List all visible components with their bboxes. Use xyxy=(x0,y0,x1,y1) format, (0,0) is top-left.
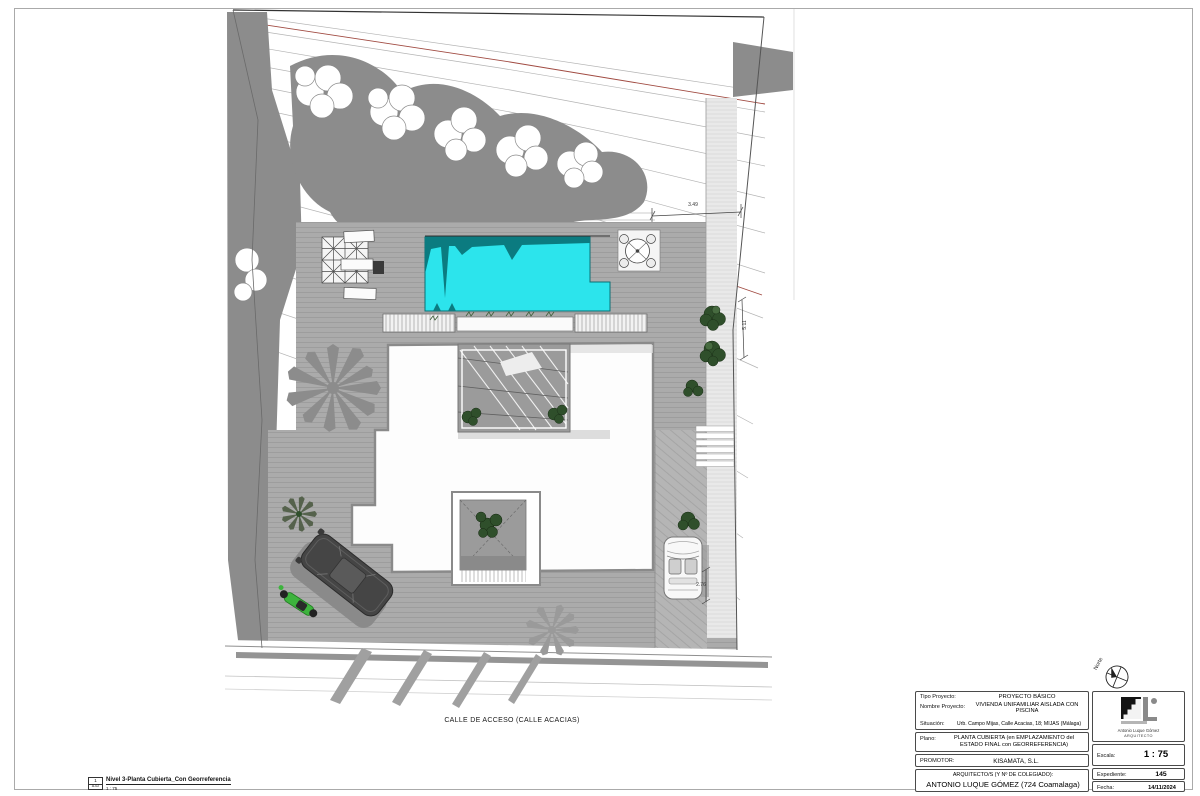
slope-strip xyxy=(706,98,737,638)
escala-value: 1 : 75 xyxy=(1131,749,1181,760)
site-boundary-right xyxy=(733,17,764,650)
architect-box: ARQUITECTO/S (Y Nº DE COLEGIADO): ANTONI… xyxy=(915,769,1089,792)
expediente-box: Expediente: 145 xyxy=(1092,768,1185,780)
nombre-proyecto-value: VIVIENDA UNIFAMILIAR AISLADA CON PISCINA xyxy=(968,702,1086,715)
bbq-icon xyxy=(373,261,384,274)
tipo-proyecto-value: PROYECTO BÁSICO xyxy=(968,694,1086,700)
fecha-label: Fecha: xyxy=(1097,785,1114,791)
north-arrow-icon xyxy=(1103,663,1132,692)
street-label: CALLE DE ACCESO (CALLE ACACIAS) xyxy=(422,717,602,724)
situacion-label: Situación: xyxy=(920,721,945,727)
plano-box: Plano: PLANTA CUBIERTA (en EMPLAZAMIENTO… xyxy=(915,732,1089,752)
promotor-box: PROMOTOR: KISAMATA, S.L. xyxy=(915,754,1089,767)
view-reference-box: 1 A-02 xyxy=(88,777,103,790)
lower-courtyard xyxy=(452,492,540,585)
dimension-label-right: 5.11 xyxy=(742,308,748,342)
logo-architect-title: ARQUITECTO xyxy=(1093,734,1184,738)
nombre-proyecto-label: Nombre Proyecto: xyxy=(920,704,965,710)
expediente-value: 145 xyxy=(1141,771,1181,778)
escala-label: Escala: xyxy=(1097,753,1115,759)
architect-value: ANTONIO LUQUE GÓMEZ (724 Coamalaga) xyxy=(916,780,1090,789)
view-legend: 1 A-02 Nivel 3-Planta Cubierta_Con Georr… xyxy=(88,776,288,794)
logo-architect-name: Antonio Luque Gómez xyxy=(1093,728,1184,733)
architect-logo-box: Antonio Luque Gómez ARQUITECTO xyxy=(1092,691,1185,742)
dimension-label-top: 3.49 xyxy=(676,202,710,208)
plano-label: Plano: xyxy=(920,736,936,742)
dimension-label-driveway: 2.76 xyxy=(684,582,718,588)
view-scale: 1 : 75 xyxy=(106,786,117,791)
access-road xyxy=(225,640,772,708)
tipo-proyecto-label: Tipo Proyecto: xyxy=(920,694,956,700)
architect-label: ARQUITECTO/S (Y Nº DE COLEGIADO): xyxy=(916,772,1090,778)
parked-car-white xyxy=(664,537,709,599)
fecha-value: 14/11/2024 xyxy=(1141,785,1183,791)
site-plan-drawing xyxy=(0,0,1200,796)
drawing-sheet: CALLE DE ACCESO (CALLE ACACIAS) 3.49 5.1… xyxy=(0,0,1200,796)
architect-logo-icon xyxy=(1119,695,1159,727)
view-title: Nivel 3-Planta Cubierta_Con Georreferenc… xyxy=(106,777,231,785)
promotor-value: KISAMATA, S.L. xyxy=(956,758,1076,765)
dining-table-set xyxy=(618,230,660,271)
view-sheet: A-02 xyxy=(89,784,102,789)
site-boundary-top xyxy=(233,10,764,17)
promotor-label: PROMOTOR: xyxy=(920,758,954,764)
expediente-label: Expediente: xyxy=(1097,772,1127,778)
escala-box: Escala: 1 : 75 xyxy=(1092,744,1185,766)
upper-courtyard xyxy=(458,344,570,432)
fecha-box: Fecha: 14/11/2024 xyxy=(1092,781,1185,792)
swimming-pool xyxy=(425,236,610,311)
situacion-value: Urb. Campo Mijas, Calle Acacias, 18; MIJ… xyxy=(952,721,1086,727)
project-info-box: Tipo Proyecto: PROYECTO BÁSICO Nombre Pr… xyxy=(915,691,1089,730)
neighbour-building xyxy=(733,42,793,97)
plano-value: PLANTA CUBIERTA (en EMPLAZAMIENTO del ES… xyxy=(942,735,1086,748)
